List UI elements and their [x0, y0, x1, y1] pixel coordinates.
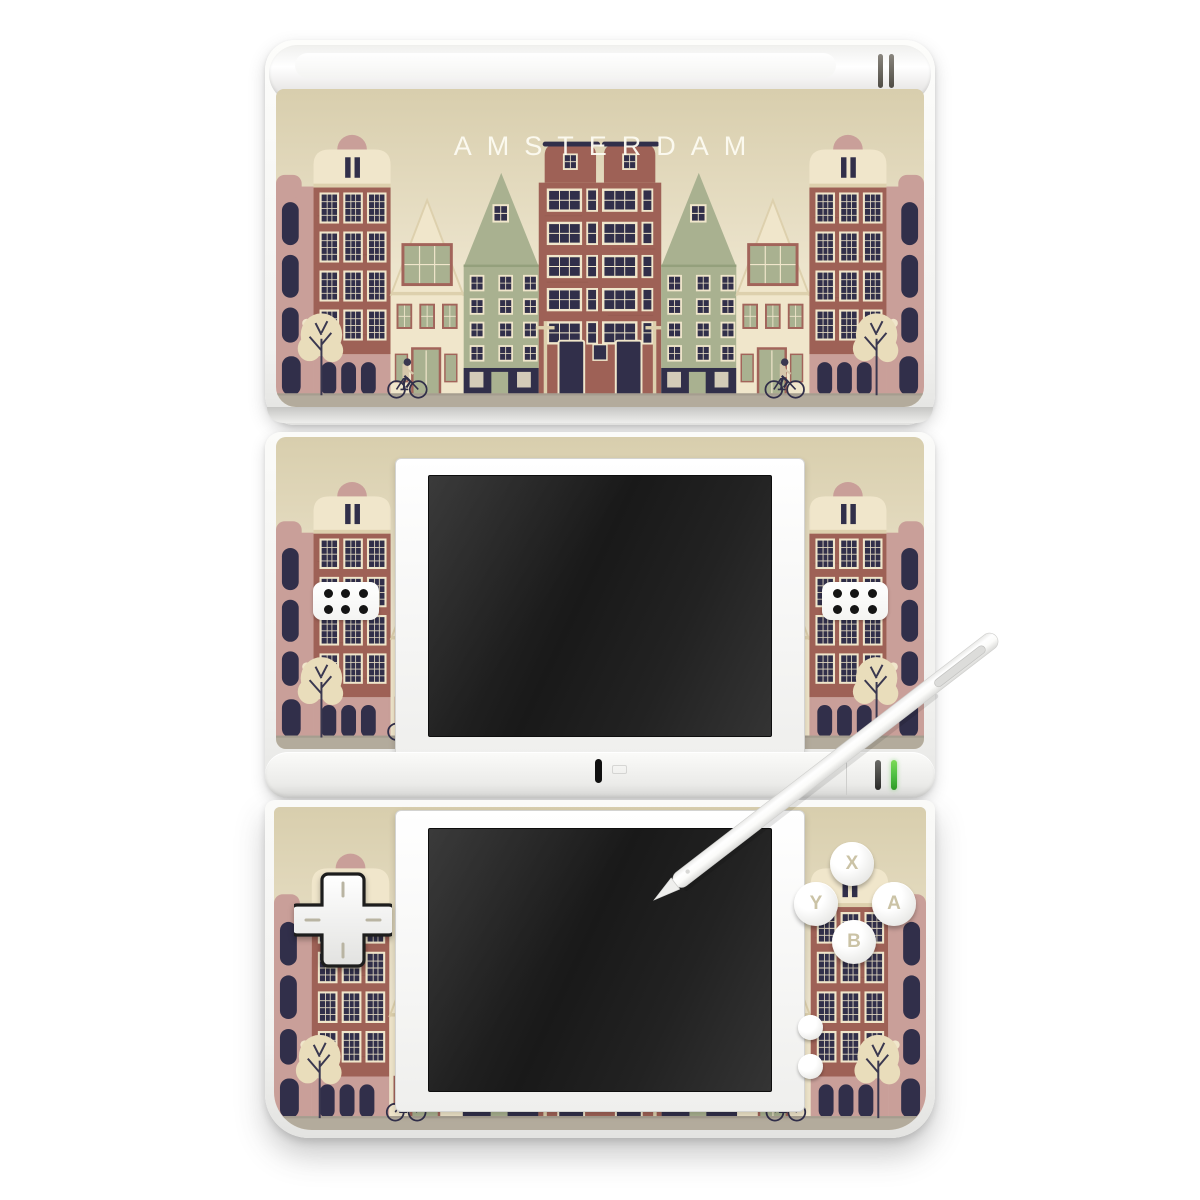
stylus-clip-slot: [933, 644, 987, 688]
button-x[interactable]: X: [830, 842, 874, 886]
dpad-button[interactable]: [294, 871, 392, 969]
button-b[interactable]: B: [832, 920, 876, 964]
start-button[interactable]: [798, 1015, 823, 1040]
hinge-vent-slot-icon: [875, 760, 881, 790]
speaker-hole-icon: [341, 605, 350, 614]
speaker-hole-icon: [868, 589, 877, 598]
speaker-hole-icon: [341, 589, 350, 598]
touch-screen-bezel: [395, 810, 805, 1112]
hinge-bar: [265, 752, 935, 798]
speaker-hole-icon: [850, 589, 859, 598]
skin-title: AMSTERDAM: [276, 131, 924, 162]
hinge-vent-slot-icon: [889, 54, 894, 88]
button-y[interactable]: Y: [794, 882, 838, 926]
microphone-hole: [595, 759, 602, 783]
power-led-icon: [891, 760, 897, 790]
top-screen-bezel: [395, 458, 805, 758]
top-screen: [428, 475, 772, 737]
skin-artwork-lid: AMSTERDAM: [276, 89, 924, 407]
lid-bottom-edge: [267, 407, 933, 423]
speaker-grille-left: [313, 582, 379, 620]
button-a[interactable]: A: [872, 882, 916, 926]
ds-top-inner: [265, 432, 935, 798]
speaker-hole-icon: [850, 605, 859, 614]
speaker-hole-icon: [324, 589, 333, 598]
touch-screen[interactable]: [428, 828, 772, 1092]
hinge-highlight: [295, 53, 836, 78]
mic-engraving-icon: [612, 765, 627, 774]
ds-bottom-inner: X Y A B: [265, 800, 935, 1138]
select-button[interactable]: [798, 1054, 823, 1079]
hinge-seam: [846, 755, 847, 795]
speaker-hole-icon: [833, 589, 842, 598]
speaker-hole-icon: [359, 605, 368, 614]
ds-lid-closed: AMSTERDAM: [265, 40, 935, 425]
hinge-vent-slot-icon: [878, 54, 883, 88]
ds-lite-product-photo: AMSTERDAM: [0, 0, 1200, 1200]
speaker-hole-icon: [833, 605, 842, 614]
speaker-hole-icon: [359, 589, 368, 598]
speaker-hole-icon: [324, 605, 333, 614]
speaker-hole-icon: [868, 605, 877, 614]
speaker-grille-right: [822, 582, 888, 620]
